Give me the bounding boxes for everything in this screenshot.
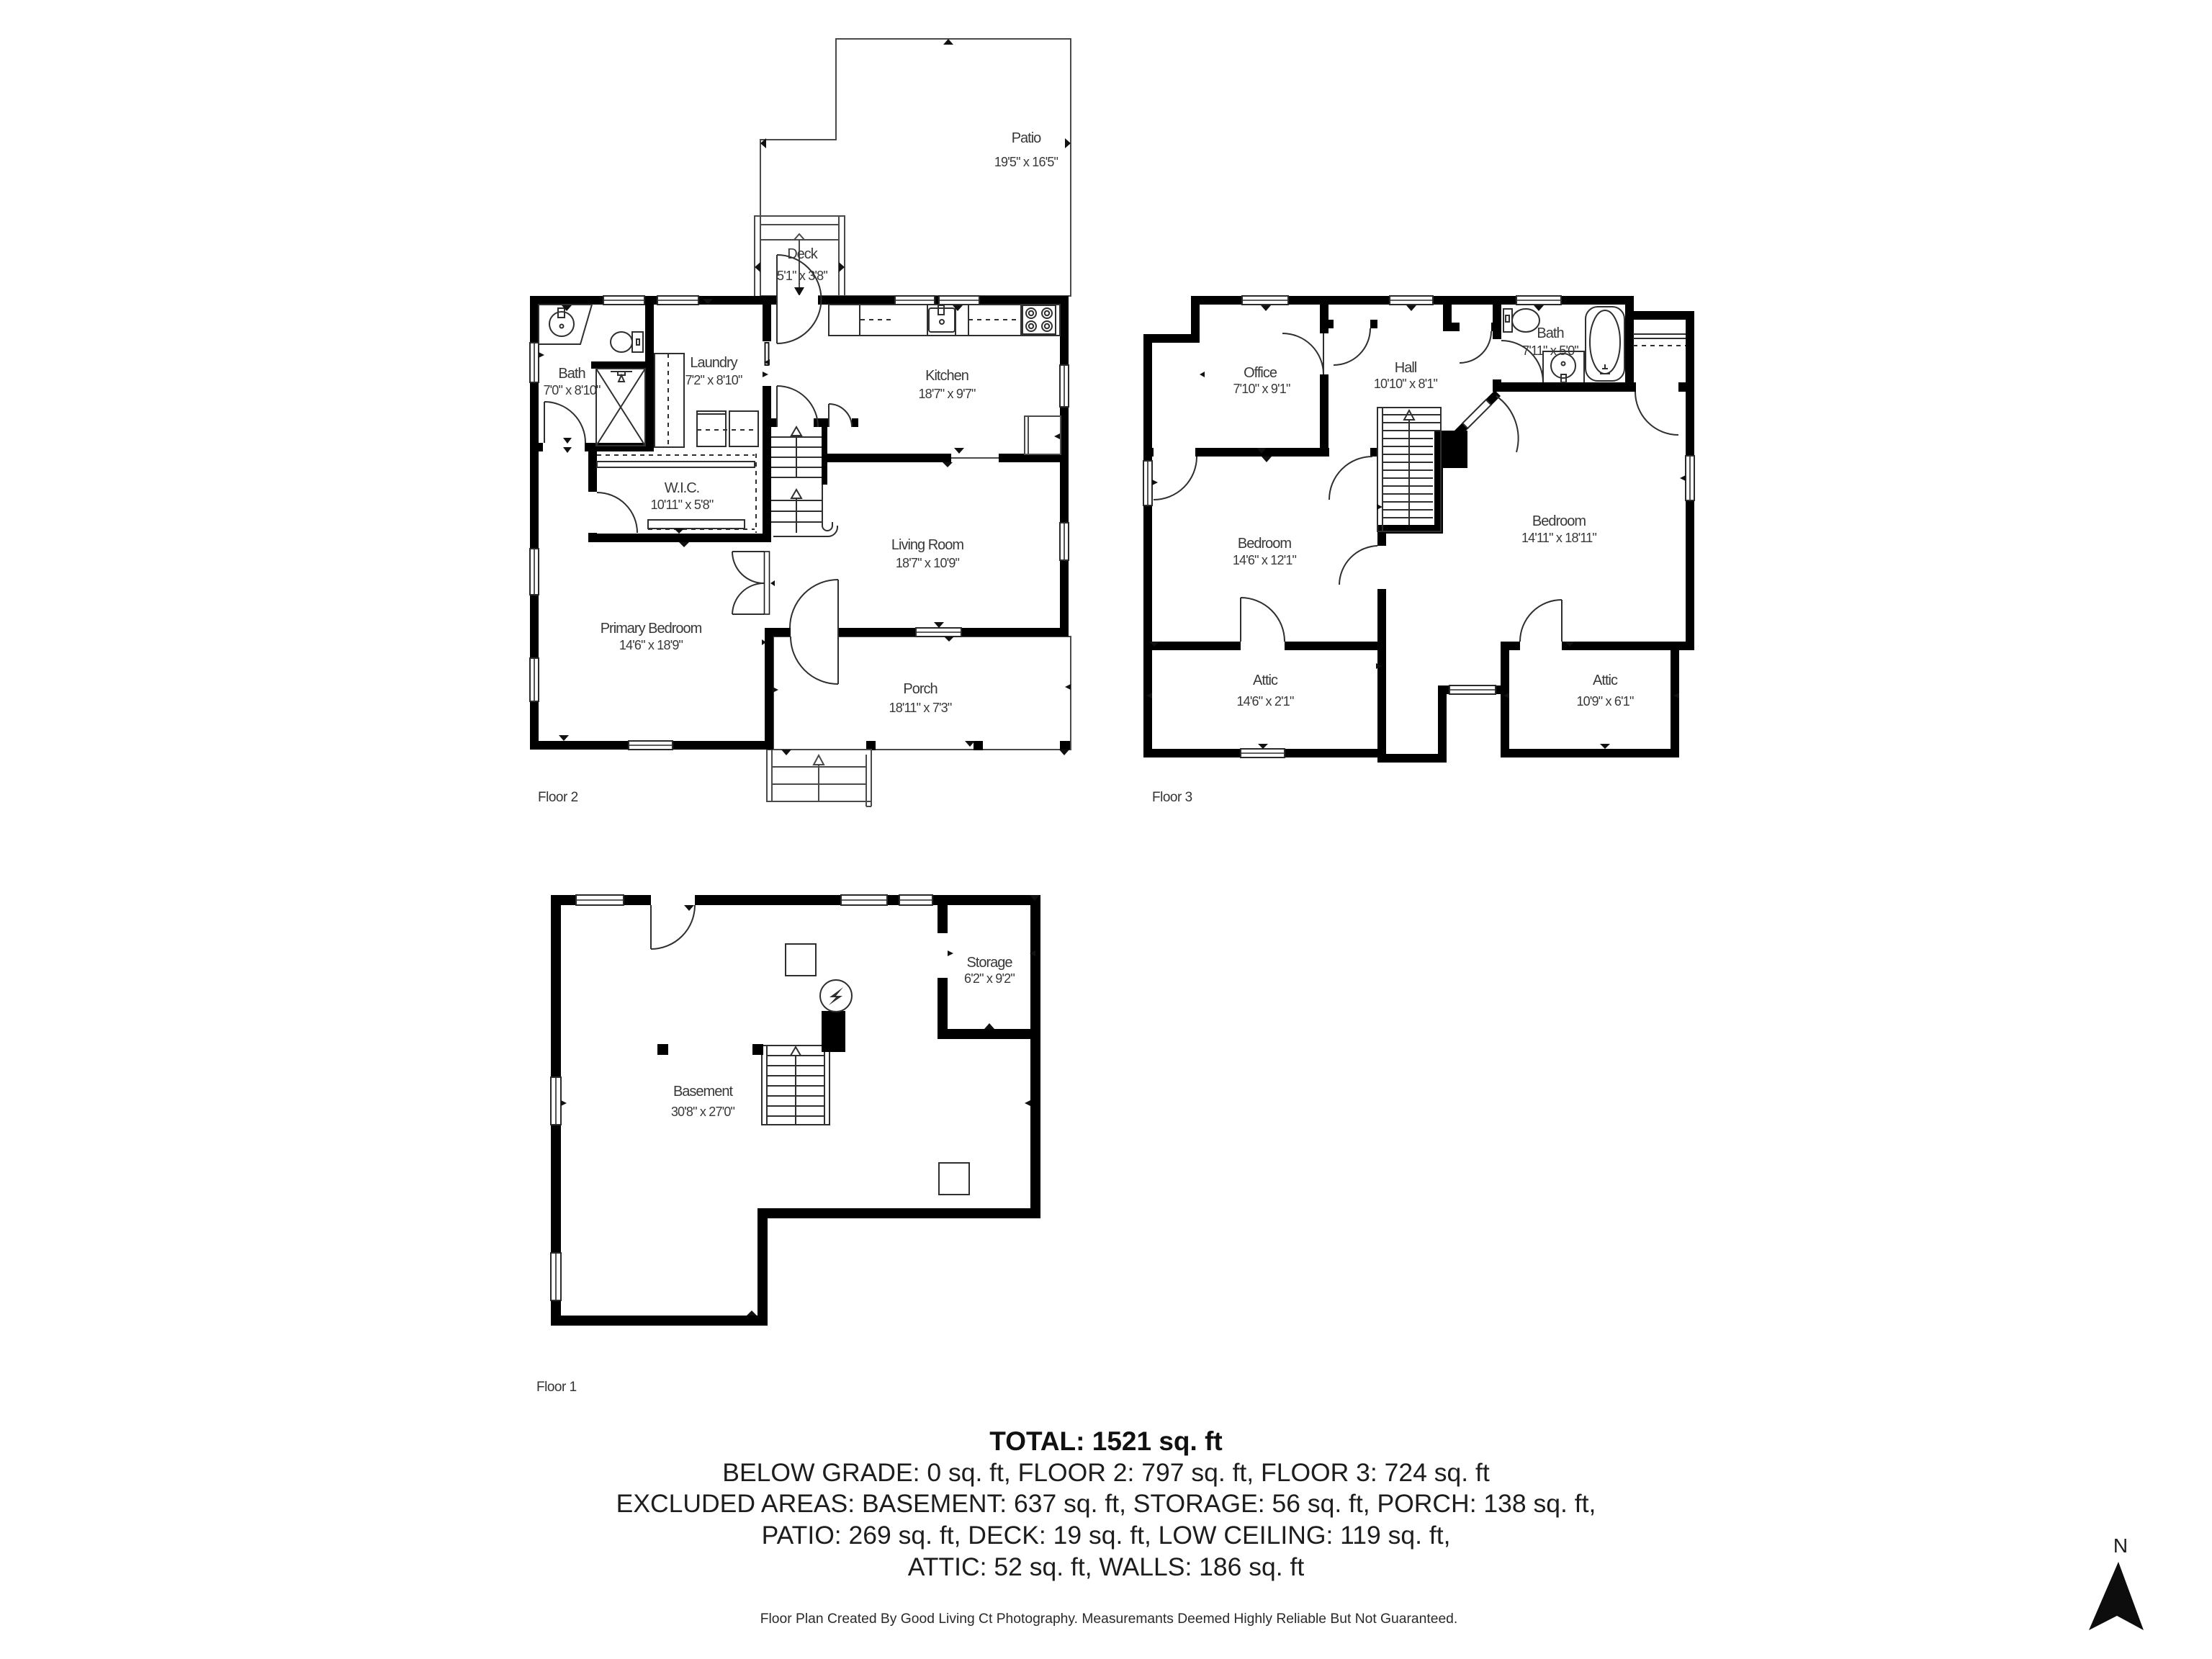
svg-text:Laundry: Laundry [690, 355, 737, 371]
svg-text:W.I.C.: W.I.C. [665, 480, 699, 496]
svg-text:7'11" x 5'0": 7'11" x 5'0" [1522, 343, 1578, 358]
svg-text:14'11" x 18'11": 14'11" x 18'11" [1521, 531, 1596, 545]
svg-text:7'10" x 9'1": 7'10" x 9'1" [1233, 382, 1290, 396]
svg-text:Floor 3: Floor 3 [1152, 790, 1192, 805]
svg-text:Porch: Porch [903, 681, 937, 697]
svg-text:Attic: Attic [1593, 673, 1618, 688]
svg-text:10'10" x 8'1": 10'10" x 8'1" [1374, 377, 1438, 391]
svg-text:Attic: Attic [1253, 673, 1278, 688]
svg-text:BELOW GRADE: 0 sq. ft, FLOOR 2: BELOW GRADE: 0 sq. ft, FLOOR 2: 797 sq. … [722, 1458, 1490, 1487]
svg-text:Floor 2: Floor 2 [538, 790, 578, 805]
svg-text:Storage: Storage [966, 955, 1012, 971]
svg-text:10'11" x 5'8": 10'11" x 5'8" [651, 498, 714, 512]
svg-text:Deck: Deck [787, 246, 819, 262]
svg-text:EXCLUDED AREAS: BASEMENT: 637: EXCLUDED AREAS: BASEMENT: 637 sq. ft, ST… [616, 1489, 1596, 1518]
svg-text:14'6" x 18'9": 14'6" x 18'9" [619, 638, 683, 652]
svg-text:Kitchen: Kitchen [925, 368, 968, 384]
svg-text:PATIO: 269 sq. ft, DECK: 19 sq: PATIO: 269 sq. ft, DECK: 19 sq. ft, LOW … [762, 1521, 1451, 1550]
svg-text:30'8" x 27'0": 30'8" x 27'0" [671, 1105, 735, 1119]
svg-text:Basement: Basement [673, 1084, 733, 1100]
svg-text:Bedroom: Bedroom [1532, 513, 1586, 529]
svg-text:7'0" x 8'10": 7'0" x 8'10" [543, 383, 601, 397]
svg-text:18'7" x 9'7": 18'7" x 9'7" [918, 387, 976, 401]
svg-text:14'6" x 12'1": 14'6" x 12'1" [1233, 553, 1297, 567]
svg-text:Floor Plan Created By Good Liv: Floor Plan Created By Good Living Ct Pho… [760, 1611, 1458, 1627]
svg-text:Hall: Hall [1395, 360, 1417, 376]
svg-text:Floor 1: Floor 1 [536, 1380, 577, 1395]
svg-text:5'1" x 3'8": 5'1" x 3'8" [777, 269, 827, 283]
svg-text:7'2" x 8'10": 7'2" x 8'10" [685, 373, 742, 387]
svg-text:Bedroom: Bedroom [1238, 536, 1291, 552]
svg-text:10'9" x 6'1": 10'9" x 6'1" [1576, 694, 1634, 709]
svg-text:14'6" x 2'1": 14'6" x 2'1" [1236, 694, 1294, 709]
svg-text:TOTAL: 1521 sq. ft: TOTAL: 1521 sq. ft [989, 1426, 1222, 1456]
svg-text:Bath: Bath [1537, 325, 1563, 341]
svg-text:Primary Bedroom: Primary Bedroom [601, 621, 702, 637]
svg-text:ATTIC: 52 sq. ft, WALLS: 186 s: ATTIC: 52 sq. ft, WALLS: 186 sq. ft [908, 1552, 1305, 1581]
svg-text:N: N [2113, 1534, 2128, 1557]
svg-text:18'11" x 7'3": 18'11" x 7'3" [889, 701, 952, 715]
svg-text:Bath: Bath [558, 366, 585, 382]
svg-text:19'5" x 16'5": 19'5" x 16'5" [994, 155, 1058, 169]
svg-text:6'2" x 9'2": 6'2" x 9'2" [964, 971, 1015, 986]
svg-text:Office: Office [1244, 365, 1277, 381]
svg-text:18'7" x 10'9": 18'7" x 10'9" [896, 556, 960, 570]
svg-text:Living Room: Living Room [891, 537, 964, 553]
svg-text:Patio: Patio [1012, 130, 1041, 146]
